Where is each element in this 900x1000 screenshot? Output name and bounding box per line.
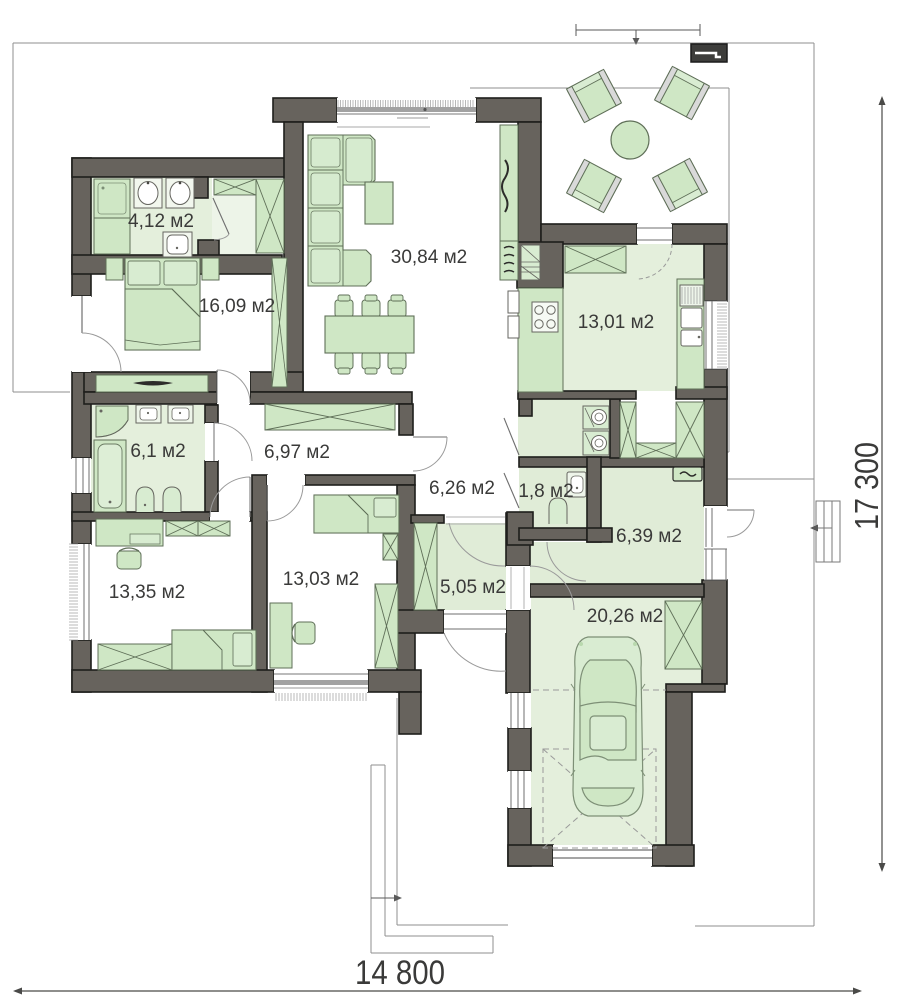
svg-text:6,1 м2: 6,1 м2 [130, 441, 185, 462]
svg-text:13,03 м2: 13,03 м2 [283, 569, 359, 590]
svg-text:4,12 м2: 4,12 м2 [128, 211, 194, 232]
svg-text:20,26 м2: 20,26 м2 [587, 606, 663, 627]
svg-text:5,05 м2: 5,05 м2 [440, 577, 506, 598]
svg-text:6,39 м2: 6,39 м2 [616, 526, 682, 547]
svg-text:6,26 м2: 6,26 м2 [429, 478, 495, 499]
svg-text:1,8 м2: 1,8 м2 [518, 481, 573, 502]
svg-text:13,01 м2: 13,01 м2 [578, 312, 654, 333]
svg-text:17 300: 17 300 [848, 442, 885, 530]
svg-text:30,84 м2: 30,84 м2 [391, 247, 467, 268]
svg-text:6,97 м2: 6,97 м2 [264, 442, 330, 463]
svg-text:14 800: 14 800 [355, 954, 445, 992]
svg-text:13,35 м2: 13,35 м2 [109, 582, 185, 603]
svg-text:16,09 м2: 16,09 м2 [199, 296, 275, 317]
